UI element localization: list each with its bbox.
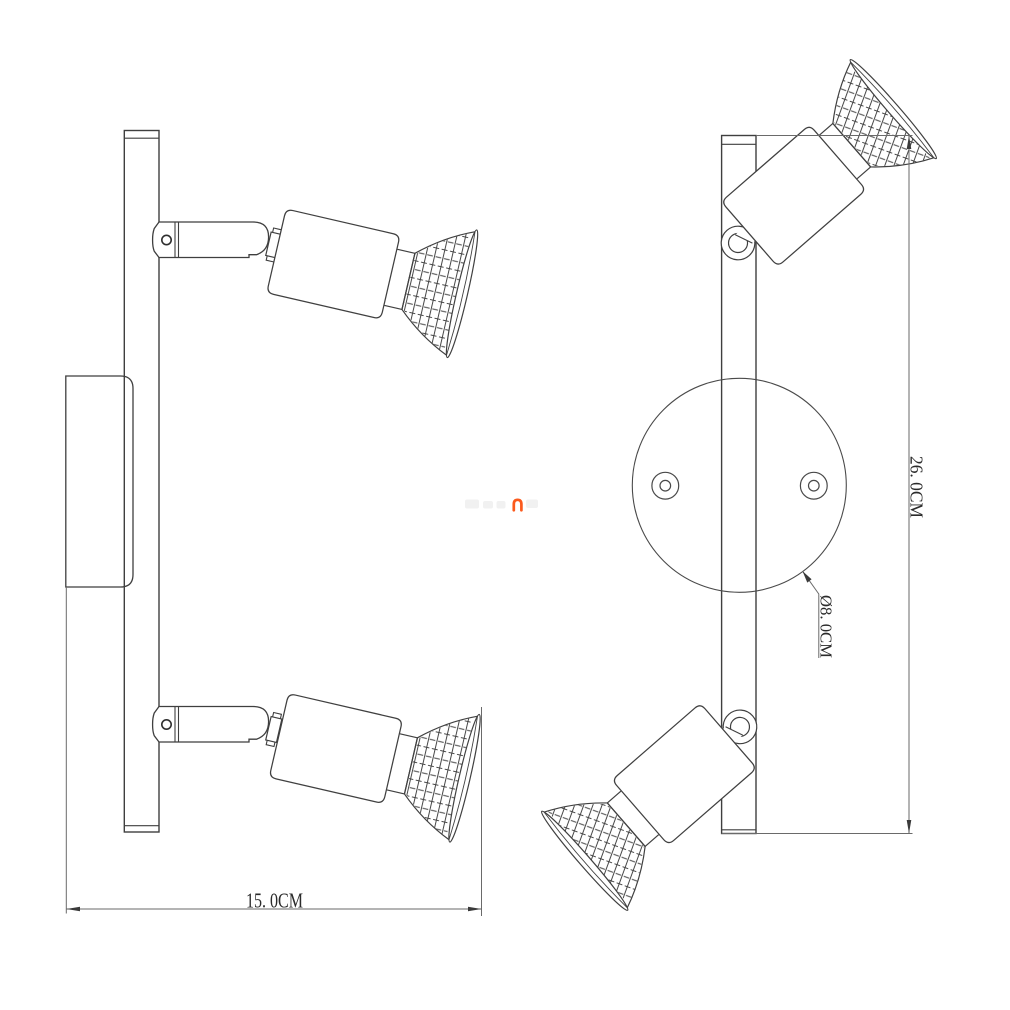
svg-text:Ø8. 0CM: Ø8. 0CM (817, 595, 836, 658)
svg-text:15. 0CM: 15. 0CM (246, 889, 303, 913)
svg-text:26. 0CM: 26. 0CM (907, 456, 927, 518)
